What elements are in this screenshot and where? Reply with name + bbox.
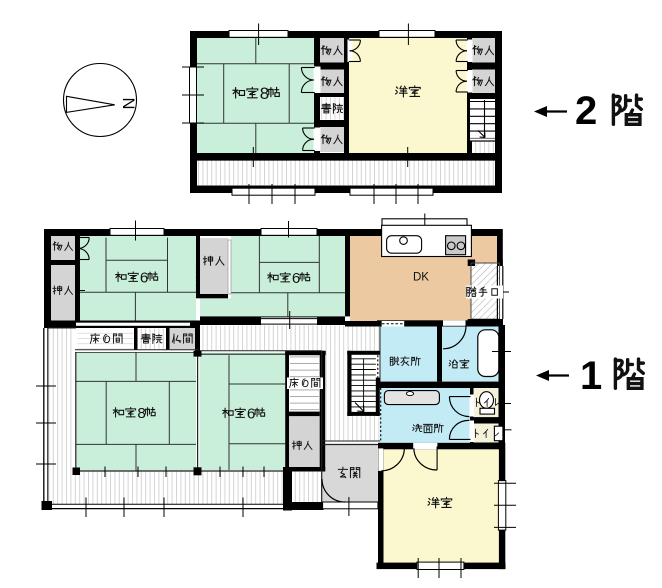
svg-text:6: 6 — [292, 270, 300, 287]
svg-text:8: 8 — [137, 405, 145, 422]
svg-text:8: 8 — [260, 84, 269, 103]
svg-text:2: 2 — [575, 89, 597, 133]
svg-text:6: 6 — [140, 269, 148, 286]
svg-text:1: 1 — [580, 354, 602, 398]
svg-text:DK: DK — [413, 272, 429, 284]
svg-text:N: N — [119, 98, 137, 110]
svg-text:6: 6 — [247, 405, 255, 422]
